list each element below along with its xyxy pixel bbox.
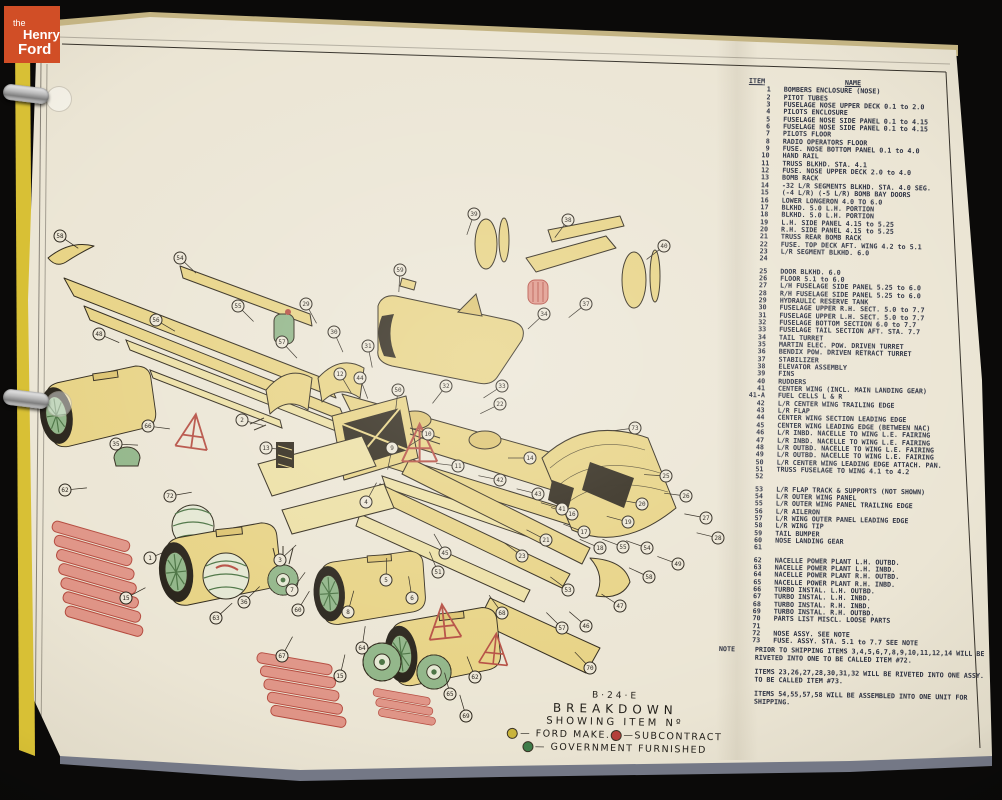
svg-text:48: 48 (95, 331, 103, 338)
svg-text:57: 57 (558, 625, 566, 632)
svg-text:63: 63 (212, 615, 220, 622)
svg-text:11: 11 (454, 463, 462, 470)
svg-text:41: 41 (558, 506, 566, 513)
svg-text:12: 12 (336, 371, 344, 378)
document-page: 5854555756484450293031122232333437383940… (0, 0, 1002, 800)
svg-text:56: 56 (152, 317, 160, 324)
svg-text:66: 66 (144, 423, 152, 430)
svg-text:30: 30 (330, 329, 338, 336)
svg-text:44: 44 (356, 375, 364, 382)
svg-text:70: 70 (586, 665, 594, 672)
svg-text:73: 73 (631, 425, 639, 432)
svg-text:34: 34 (540, 311, 548, 318)
svg-text:49: 49 (674, 561, 682, 568)
svg-text:65: 65 (446, 691, 454, 698)
svg-text:7: 7 (290, 587, 294, 594)
svg-text:42: 42 (496, 477, 504, 484)
svg-text:54: 54 (643, 545, 651, 552)
svg-text:68: 68 (498, 610, 506, 617)
svg-text:29: 29 (302, 301, 310, 308)
svg-text:64: 64 (358, 645, 366, 652)
svg-text:47: 47 (616, 603, 624, 610)
svg-text:62: 62 (61, 487, 69, 494)
svg-text:54: 54 (176, 255, 184, 262)
svg-text:58: 58 (645, 574, 653, 581)
ring-hole (46, 86, 72, 112)
svg-text:69: 69 (462, 713, 470, 720)
legend-color-marker (522, 741, 533, 752)
legend-item: — FORD MAKE. (507, 728, 611, 741)
svg-text:19: 19 (624, 519, 632, 526)
svg-text:35: 35 (112, 441, 120, 448)
legend-color-marker (610, 730, 621, 741)
svg-text:31: 31 (364, 343, 372, 350)
svg-text:25: 25 (662, 473, 670, 480)
svg-text:3: 3 (278, 557, 282, 564)
logo-henry: Henry (23, 28, 60, 41)
henry-ford-logo: the Henry Ford (4, 6, 60, 63)
svg-text:8: 8 (346, 609, 350, 616)
svg-text:18: 18 (596, 545, 604, 552)
ring-hole (46, 391, 72, 417)
photo-background: 5854555756484450293031122232333437383940… (0, 0, 1002, 800)
svg-text:32: 32 (442, 383, 450, 390)
exploded-diagram: 5854555756484450293031122232333437383940… (30, 128, 740, 728)
svg-text:26: 26 (682, 493, 690, 500)
svg-text:39: 39 (470, 211, 478, 218)
legend-item: —SUBCONTRACT (610, 730, 722, 743)
svg-text:50: 50 (394, 387, 402, 394)
title-block: B·24·E BREAKDOWN SHOWING ITEM Nº — FORD … (469, 688, 760, 757)
svg-text:17: 17 (580, 529, 588, 536)
svg-text:28: 28 (714, 535, 722, 542)
header-item: ITEM (749, 78, 773, 86)
tail-section (378, 216, 660, 384)
svg-text:55: 55 (234, 303, 242, 310)
svg-text:46: 46 (582, 623, 590, 630)
parts-list-rows: 1BOMBERS ENCLOSURE (NOSE)2PITOT TUBES3FU… (738, 86, 1001, 649)
svg-text:60: 60 (294, 607, 302, 614)
svg-text:15: 15 (336, 673, 344, 680)
svg-text:14: 14 (526, 455, 534, 462)
svg-text:43: 43 (534, 491, 542, 498)
svg-text:67: 67 (278, 653, 286, 660)
svg-text:33: 33 (498, 383, 506, 390)
svg-text:20: 20 (638, 501, 646, 508)
svg-text:36: 36 (240, 599, 248, 606)
ball-turret (203, 553, 249, 599)
svg-text:4: 4 (364, 499, 368, 506)
svg-text:58: 58 (56, 233, 64, 240)
svg-text:6: 6 (410, 595, 414, 602)
parts-list: ITEM NAME 1BOMBERS ENCLOSURE (NOSE)2PITO… (738, 78, 1001, 650)
svg-text:45: 45 (441, 550, 449, 557)
svg-text:23: 23 (518, 553, 526, 560)
svg-text:51: 51 (434, 569, 442, 576)
svg-text:5: 5 (384, 577, 388, 584)
svg-text:13: 13 (262, 445, 270, 452)
svg-text:59: 59 (396, 267, 404, 274)
svg-text:53: 53 (564, 587, 572, 594)
logo-ford: Ford (18, 42, 51, 57)
svg-text:9: 9 (390, 445, 394, 452)
svg-text:22: 22 (496, 401, 504, 408)
svg-text:38: 38 (564, 217, 572, 224)
svg-text:72: 72 (166, 493, 174, 500)
svg-text:55: 55 (619, 544, 627, 551)
svg-text:40: 40 (660, 243, 668, 250)
svg-text:2: 2 (240, 417, 244, 424)
svg-text:15: 15 (122, 595, 130, 602)
note-paragraphs: PRIOR TO SHIPPING ITEMS 3,4,5,6,7,8,9,10… (754, 647, 995, 718)
svg-text:1: 1 (148, 555, 152, 562)
svg-text:57: 57 (278, 339, 286, 346)
svg-text:21: 21 (542, 537, 550, 544)
legend-color-marker (507, 728, 518, 739)
svg-text:16: 16 (568, 511, 576, 518)
svg-text:37: 37 (582, 301, 590, 308)
svg-text:27: 27 (702, 515, 710, 522)
svg-text:62: 62 (471, 674, 479, 681)
svg-text:10: 10 (424, 431, 432, 438)
